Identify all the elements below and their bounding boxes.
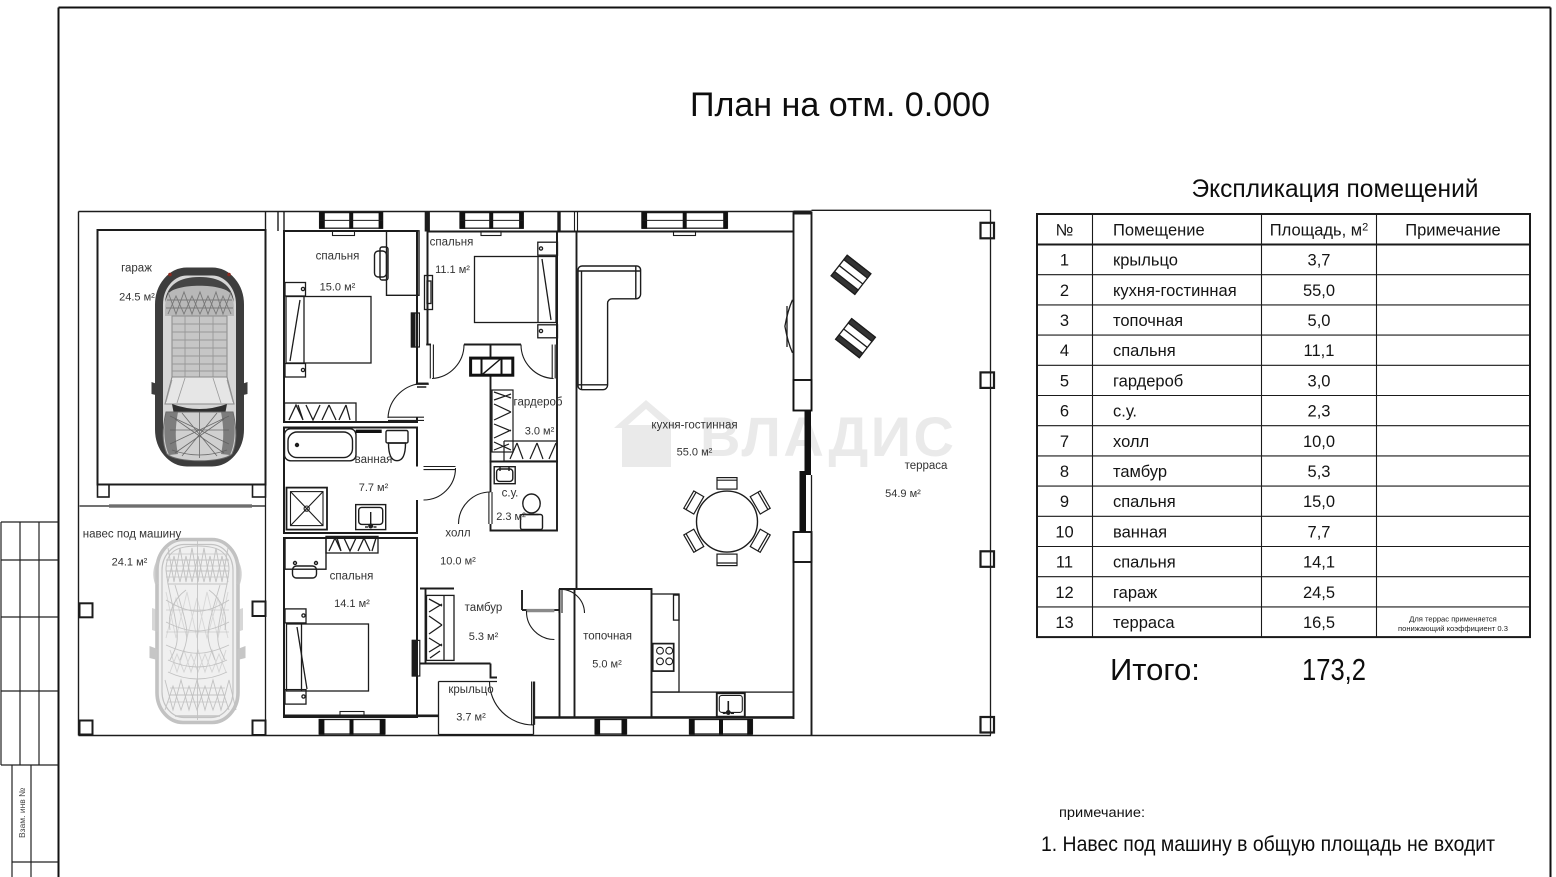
svg-text:54.9 м²: 54.9 м² — [885, 488, 921, 500]
svg-text:ванная: ванная — [1113, 523, 1167, 541]
svg-text:холл: холл — [445, 528, 470, 540]
svg-text:3,0: 3,0 — [1308, 372, 1331, 390]
svg-text:Экспликация помещений: Экспликация помещений — [1192, 175, 1479, 203]
svg-text:8: 8 — [1060, 463, 1069, 481]
svg-text:11: 11 — [1056, 554, 1073, 572]
svg-text:Примечание: Примечание — [1405, 222, 1501, 240]
svg-text:тамбур: тамбур — [465, 602, 503, 614]
svg-text:15,0: 15,0 — [1303, 493, 1335, 511]
svg-text:2,3: 2,3 — [1308, 403, 1331, 421]
svg-text:терраса: терраса — [905, 460, 948, 472]
svg-text:гараж: гараж — [1113, 584, 1157, 602]
svg-text:2.3 м²: 2.3 м² — [496, 511, 526, 523]
svg-text:16,5: 16,5 — [1303, 614, 1335, 632]
svg-text:гардероб: гардероб — [514, 397, 563, 409]
svg-text:спальня: спальня — [430, 237, 474, 249]
svg-text:13: 13 — [1055, 614, 1073, 632]
svg-text:гардероб: гардероб — [1113, 372, 1183, 390]
svg-text:2: 2 — [1060, 282, 1069, 300]
svg-text:понижающий коэффициент 0.3: понижающий коэффициент 0.3 — [1398, 624, 1508, 633]
svg-text:14,1: 14,1 — [1303, 554, 1335, 572]
svg-text:11,1: 11,1 — [1304, 342, 1335, 360]
svg-text:5: 5 — [1060, 372, 1069, 390]
svg-text:3.0 м²: 3.0 м² — [525, 426, 555, 438]
svg-text:24,5: 24,5 — [1303, 584, 1335, 602]
svg-text:спальня: спальня — [1113, 554, 1176, 572]
svg-text:с.у.: с.у. — [502, 488, 519, 500]
svg-text:3.7 м²: 3.7 м² — [456, 712, 486, 724]
svg-text:5.3 м²: 5.3 м² — [469, 631, 499, 643]
svg-text:спальня: спальня — [1113, 342, 1176, 360]
svg-text:примечание:: примечание: — [1059, 805, 1145, 820]
svg-text:кухня-гостинная: кухня-гостинная — [651, 420, 737, 432]
svg-text:с.у.: с.у. — [1113, 403, 1137, 421]
svg-text:7: 7 — [1060, 433, 1069, 451]
svg-text:тамбур: тамбур — [1113, 463, 1167, 481]
svg-text:3,7: 3,7 — [1308, 252, 1331, 270]
svg-text:кухня-гостинная: кухня-гостинная — [1113, 282, 1237, 300]
svg-text:3: 3 — [1060, 312, 1069, 330]
svg-text:крыльцо: крыльцо — [1113, 252, 1178, 270]
svg-text:крыльцо: крыльцо — [448, 684, 493, 696]
svg-text:Взам. инв №: Взам. инв № — [17, 788, 27, 838]
svg-text:гараж: гараж — [121, 263, 152, 275]
svg-text:24.5 м²: 24.5 м² — [119, 292, 155, 304]
svg-text:Помещение: Помещение — [1113, 222, 1205, 240]
svg-text:24.1 м²: 24.1 м² — [112, 557, 148, 569]
svg-text:4: 4 — [1060, 342, 1069, 360]
svg-text:7,7: 7,7 — [1308, 523, 1331, 541]
svg-text:спальня: спальня — [316, 251, 360, 263]
svg-text:Итого:: Итого: — [1110, 652, 1200, 687]
svg-text:спальня: спальня — [1113, 493, 1176, 511]
svg-text:173,2: 173,2 — [1302, 652, 1366, 687]
svg-text:№: № — [1056, 222, 1074, 240]
svg-text:15.0 м²: 15.0 м² — [320, 282, 356, 294]
svg-text:12: 12 — [1055, 584, 1073, 602]
svg-text:1. Навес под машину в общую пл: 1. Навес под машину в общую площадь не в… — [1041, 832, 1495, 856]
svg-text:55,0: 55,0 — [1303, 282, 1335, 300]
svg-text:1: 1 — [1060, 252, 1069, 270]
svg-text:топочная: топочная — [1113, 312, 1183, 330]
svg-text:5,0: 5,0 — [1308, 312, 1331, 330]
svg-text:топочная: топочная — [583, 631, 632, 643]
svg-text:спальня: спальня — [330, 571, 374, 583]
svg-text:14.1 м²: 14.1 м² — [334, 598, 370, 610]
svg-text:План на отм. 0.000: План на отм. 0.000 — [690, 86, 990, 124]
svg-text:7.7 м²: 7.7 м² — [359, 482, 389, 494]
svg-text:55.0 м²: 55.0 м² — [677, 447, 713, 459]
svg-text:5,3: 5,3 — [1308, 463, 1331, 481]
svg-text:10: 10 — [1055, 523, 1073, 541]
svg-text:терраса: терраса — [1113, 614, 1175, 632]
svg-text:5.0 м²: 5.0 м² — [592, 659, 622, 671]
svg-text:6: 6 — [1060, 403, 1069, 421]
svg-text:ВЛАДИС: ВЛАДИС — [700, 405, 956, 468]
svg-text:Для террас применяется: Для террас применяется — [1409, 615, 1497, 624]
svg-text:ванная: ванная — [355, 454, 393, 466]
svg-text:Площадь, м2: Площадь, м2 — [1270, 222, 1368, 240]
svg-text:навес под машину: навес под машину — [83, 529, 182, 541]
svg-text:11.1 м²: 11.1 м² — [435, 264, 470, 276]
svg-text:10,0: 10,0 — [1303, 433, 1335, 451]
svg-text:10.0 м²: 10.0 м² — [440, 556, 476, 568]
svg-text:9: 9 — [1060, 493, 1069, 511]
svg-text:холл: холл — [1113, 433, 1149, 451]
